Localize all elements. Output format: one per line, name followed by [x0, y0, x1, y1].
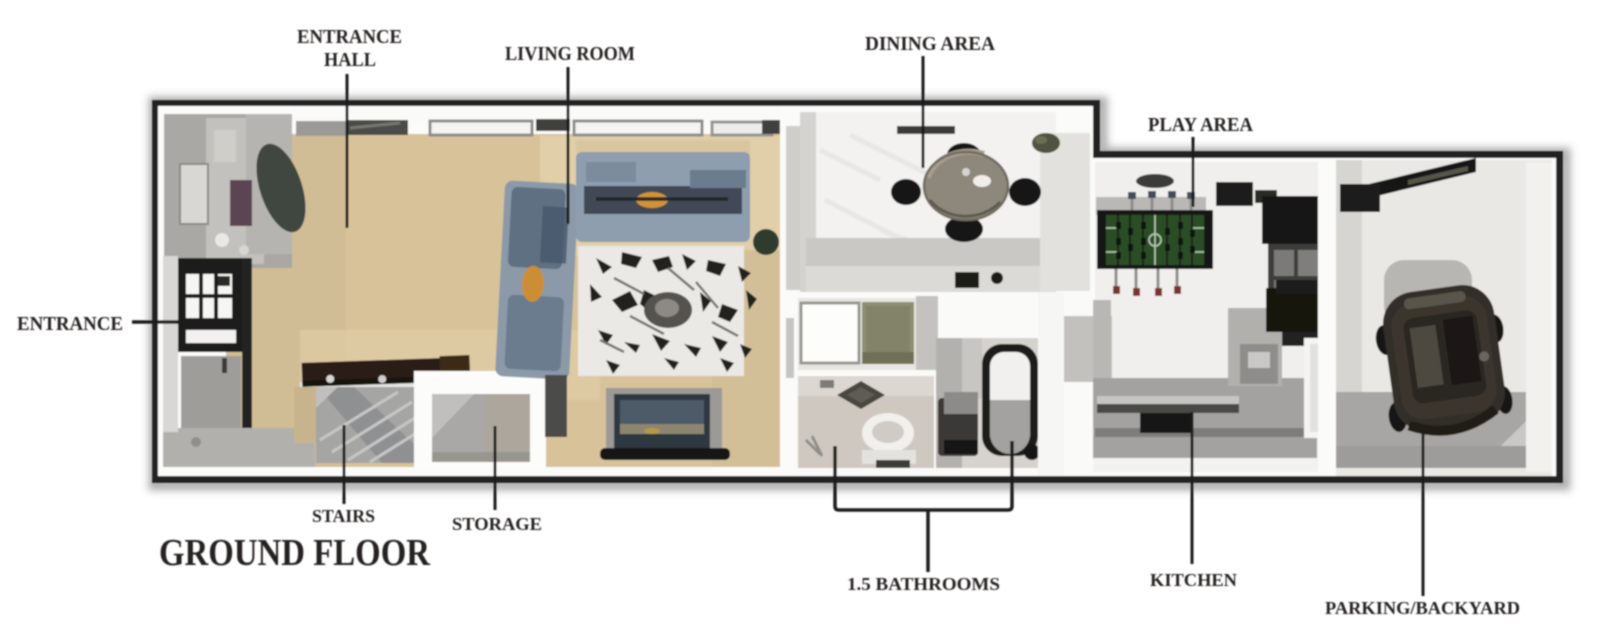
- svg-text:DINING AREA: DINING AREA: [865, 33, 996, 55]
- svg-text:STAIRS: STAIRS: [312, 506, 375, 526]
- svg-text:PLAY AREA: PLAY AREA: [1148, 114, 1254, 136]
- svg-text:LIVING ROOM: LIVING ROOM: [505, 43, 635, 65]
- svg-text:ENTRANCE: ENTRANCE: [17, 313, 123, 335]
- svg-text:STORAGE: STORAGE: [452, 514, 542, 534]
- svg-text:PARKING/BACKYARD: PARKING/BACKYARD: [1325, 598, 1520, 618]
- svg-text:GROUND FLOOR: GROUND FLOOR: [159, 532, 430, 574]
- svg-text:ENTRANCE: ENTRANCE: [297, 26, 402, 48]
- svg-text:1.5 BATHROOMS: 1.5 BATHROOMS: [847, 574, 1000, 594]
- svg-text:KITCHEN: KITCHEN: [1150, 570, 1237, 590]
- svg-text:HALL: HALL: [324, 49, 376, 71]
